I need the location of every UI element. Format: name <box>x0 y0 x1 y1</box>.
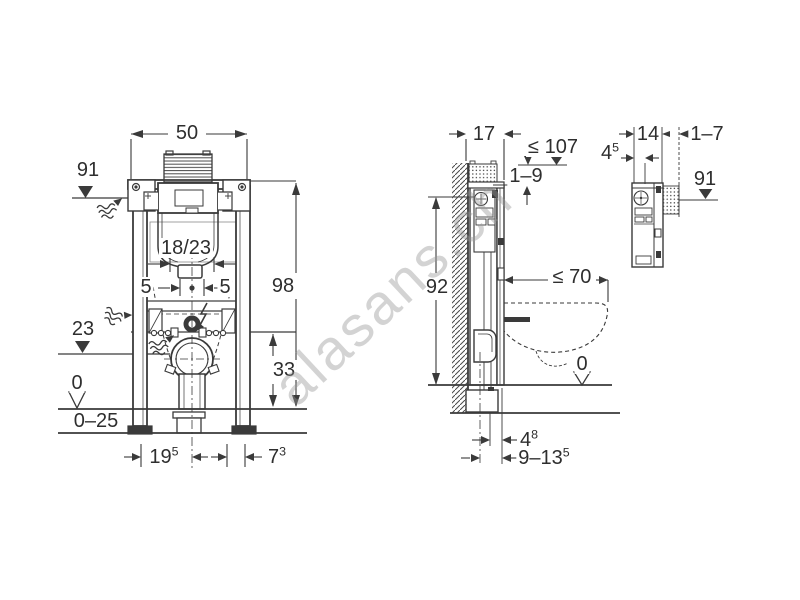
arrow-left-icon <box>504 130 513 138</box>
arrow-right-icon <box>471 454 480 462</box>
dim-bolt-left: 5 <box>138 277 153 297</box>
arrow-left-icon <box>502 454 511 462</box>
arrow-up-icon <box>269 334 277 346</box>
dim-finish-range: 1–7 <box>688 124 725 144</box>
arrow-right-icon <box>599 276 608 284</box>
detail-unit <box>632 183 679 267</box>
outlet-stub <box>466 390 498 412</box>
outlet-elbow <box>177 418 201 433</box>
arrow-up-icon <box>292 183 300 195</box>
dim-bolt-right: 5 <box>217 277 232 297</box>
arrow-up-icon <box>523 186 531 195</box>
arrow-left-icon <box>645 154 653 162</box>
arrow-left-icon <box>502 436 511 444</box>
protection-board <box>663 186 679 214</box>
outlet-elbow-side <box>474 330 496 362</box>
dim-outlet-range: 9–135 <box>516 448 571 468</box>
dim-floor-buildup: 0–25 <box>72 411 121 431</box>
level-triangle-filled-icon <box>78 186 93 198</box>
level-triangle-filled-icon <box>75 341 90 353</box>
arrow-right-icon <box>218 453 227 461</box>
arrow-up-icon <box>432 197 440 209</box>
arrow-left-icon <box>131 130 143 138</box>
dim-floor-level-side: 0 <box>574 354 589 374</box>
dim-pan-depth: ≤ 70 <box>551 267 594 287</box>
technical-drawing-page: 50 91 18/23 5 5 23 98 33 0 0–25 195 73 1… <box>0 0 800 600</box>
arrow-left-icon <box>504 276 513 284</box>
fixing-stud <box>504 317 530 322</box>
dim-unit-depth: 14 <box>635 124 661 144</box>
arrow-right-icon <box>481 436 490 444</box>
installation-drawing <box>0 0 800 600</box>
dim-side-offset: 73 <box>266 447 288 467</box>
dim-drain-height: 33 <box>271 360 297 380</box>
arrow-right-icon <box>457 130 466 138</box>
moisture-arrow-icon <box>101 303 132 331</box>
arrow-right-icon <box>132 453 141 461</box>
detail-view <box>619 127 718 267</box>
arrow-right-icon <box>626 154 634 162</box>
wall-hatch <box>452 163 468 413</box>
dim-outlet-level: 23 <box>70 319 96 339</box>
protection-box <box>164 154 212 182</box>
arrow-right-icon <box>235 130 247 138</box>
arrow-left-icon <box>662 131 670 137</box>
protection-board <box>469 164 497 182</box>
dim-frame-depth: 17 <box>471 124 497 144</box>
arrow-right-icon <box>171 284 180 292</box>
arrow-left-icon <box>245 453 254 461</box>
dim-service-opening: 18/23 <box>159 238 213 258</box>
dim-foot-offset: 195 <box>147 447 180 467</box>
dim-max-top: ≤ 107 <box>526 137 580 157</box>
dim-frame-width: 50 <box>174 123 200 143</box>
dim-plate-offset: 45 <box>599 143 621 163</box>
arrow-down-icon <box>432 373 440 385</box>
arrow-left-icon <box>192 453 201 461</box>
dim-fixing-height: 92 <box>424 277 450 297</box>
flush-bend-stub <box>178 265 202 278</box>
arrow-left-icon <box>214 260 224 268</box>
pan-outline-side-dashed <box>504 303 608 352</box>
dim-floor-level: 0 <box>69 373 84 393</box>
dim-plate-level: 91 <box>692 169 718 189</box>
level-triangle-open-icon <box>69 392 85 408</box>
arrow-left-icon <box>204 284 213 292</box>
dim-frame-height: 98 <box>270 276 296 296</box>
arrow-down-icon <box>292 395 300 407</box>
arrow-down-icon <box>269 395 277 407</box>
dim-top-level: 91 <box>75 160 101 180</box>
moisture-arrow-icon <box>96 198 124 219</box>
dim-top-adjust: 1–9 <box>507 166 544 186</box>
center-dot-icon <box>189 285 194 290</box>
arrow-right-icon <box>626 130 634 138</box>
